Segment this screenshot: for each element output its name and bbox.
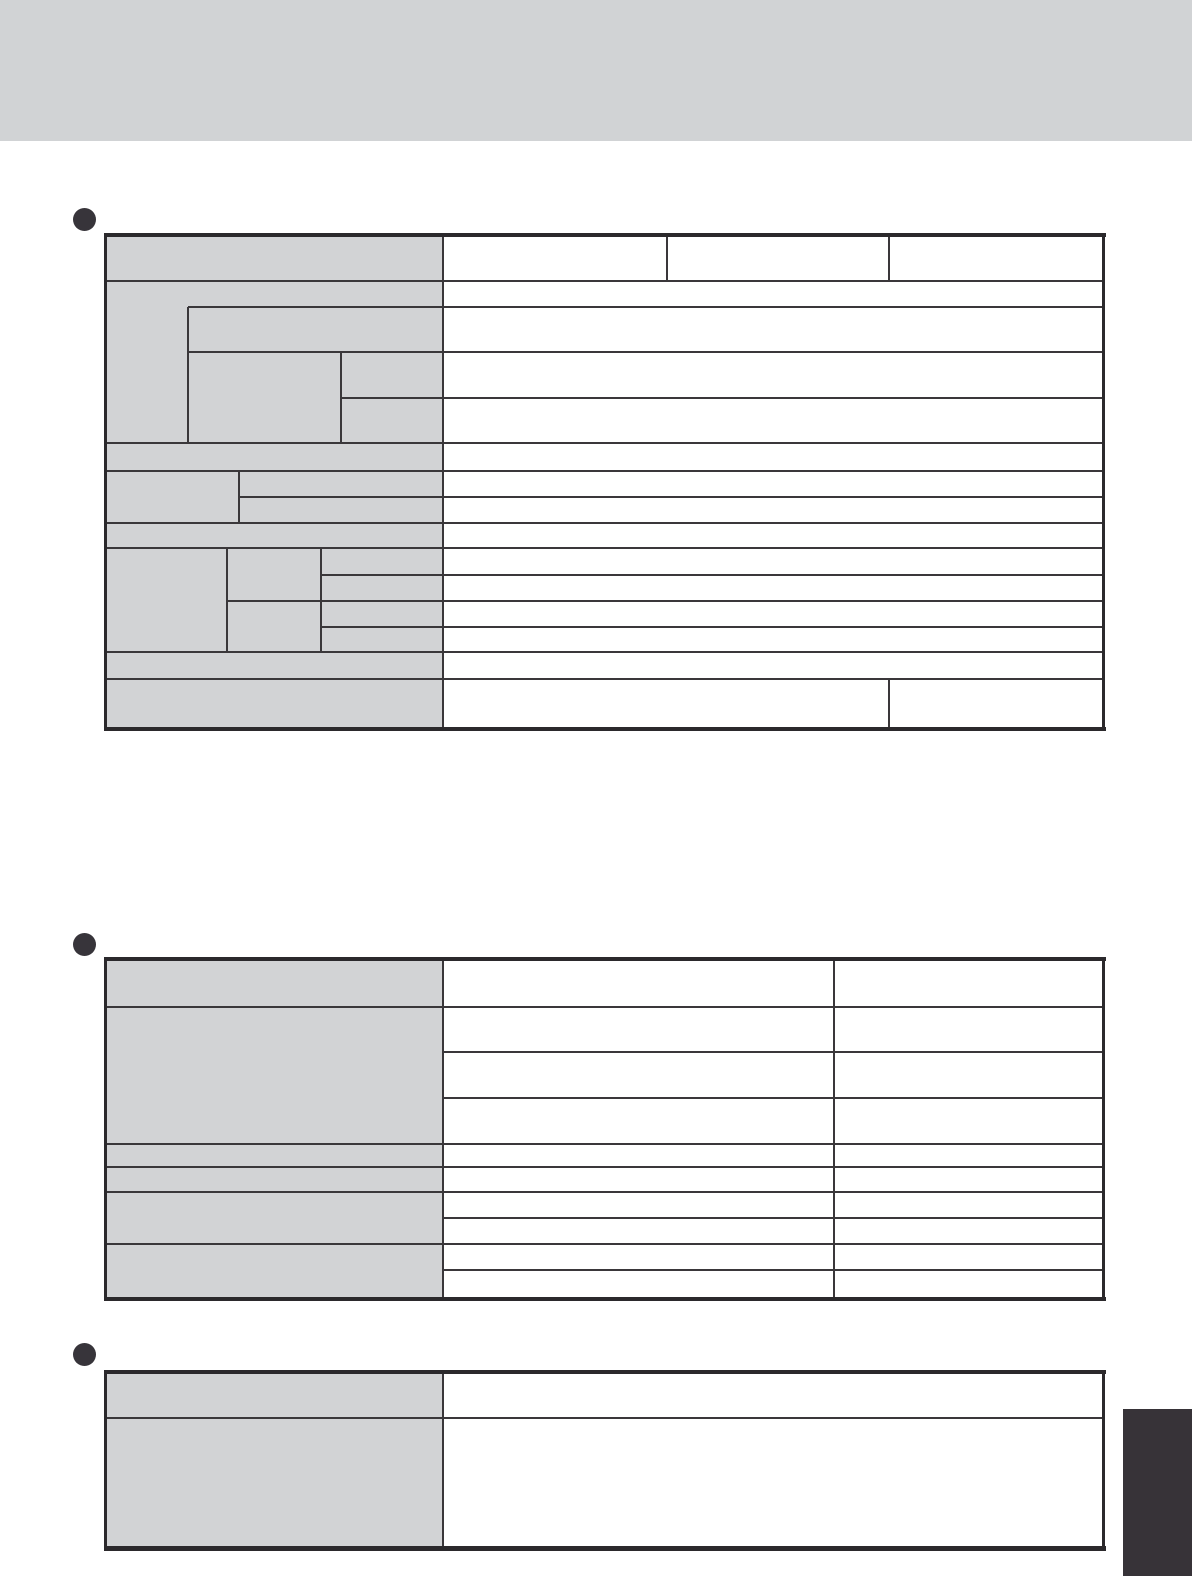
t3-data-cell — [443, 1418, 1104, 1548]
t1-footer-data-cell — [443, 679, 889, 730]
t1-group3-mid-label-cell — [227, 601, 321, 652]
t2-data-cell — [834, 1052, 1104, 1098]
t3-border — [1102, 1370, 1105, 1551]
t2-grid-line — [442, 960, 444, 1300]
t2-grid-line — [443, 1269, 1104, 1271]
t3-row-label-cell — [105, 1418, 443, 1548]
t2-data-cell — [443, 1218, 834, 1244]
t1-group3-label-column — [105, 548, 227, 652]
document-page — [0, 0, 1192, 1576]
t2-row-label-cell — [105, 1144, 443, 1167]
t1-data-cell — [443, 398, 1104, 443]
section3-bullet-icon — [73, 1343, 96, 1366]
t2-merged-label-cell — [105, 1192, 443, 1244]
t1-header-data-cell — [889, 235, 1104, 281]
t1-grid-line — [227, 600, 1104, 602]
t2-data-cell — [443, 1098, 834, 1144]
t2-grid-line — [105, 1143, 1104, 1145]
t1-data-cell — [443, 281, 1104, 307]
t1-group2-label-column — [105, 471, 239, 523]
t1-data-cell — [443, 497, 1104, 523]
t1-border — [1102, 233, 1105, 731]
t1-grid-line — [341, 397, 1104, 399]
page-header-band — [0, 0, 1192, 141]
t1-group1-inner-label-cell — [341, 398, 443, 443]
t2-data-cell — [834, 1007, 1104, 1052]
t1-grid-line — [340, 352, 342, 443]
t1-group1-inner-label-cell — [341, 352, 443, 398]
t2-data-cell — [834, 1167, 1104, 1192]
t1-group3-inner-label-cell — [321, 575, 443, 601]
section1-bullet-icon — [73, 208, 96, 231]
t1-grid-line — [105, 442, 1104, 444]
t1-grid-line — [105, 280, 1104, 282]
t1-data-cell — [443, 601, 1104, 627]
t1-data-cell — [443, 627, 1104, 652]
t1-data-cell — [443, 352, 1104, 398]
t1-group2-sublabel-cell — [239, 497, 443, 523]
t2-grid-line — [443, 1051, 1104, 1053]
t2-grid-line — [105, 1006, 1104, 1008]
t1-grid-line — [105, 651, 1104, 653]
t3-border — [104, 1370, 1106, 1374]
t2-row-label-cell — [105, 1167, 443, 1192]
t1-grid-line — [105, 522, 1104, 524]
t1-grid-line — [666, 235, 668, 281]
t2-data-cell — [834, 1098, 1104, 1144]
t2-header-data-cell — [834, 960, 1104, 1007]
t2-border — [1102, 957, 1105, 1301]
t1-grid-line — [105, 547, 1104, 549]
t1-grid-line — [188, 306, 1104, 308]
t2-data-cell — [834, 1270, 1104, 1300]
t1-data-cell — [443, 548, 1104, 575]
section2-bullet-icon — [73, 933, 96, 956]
t3-border — [104, 1370, 107, 1551]
t1-grid-line — [188, 351, 1104, 353]
t1-grid-line — [239, 496, 1104, 498]
t1-group3-inner-label-cell — [321, 601, 443, 627]
t1-header-data-cell — [667, 235, 889, 281]
t1-group1-sublabel-cell — [188, 307, 443, 352]
t1-row-label-cell — [105, 652, 443, 679]
t2-data-cell — [443, 1270, 834, 1300]
t1-data-cell — [443, 307, 1104, 352]
t2-data-cell — [443, 1167, 834, 1192]
t1-grid-line — [226, 548, 228, 652]
t2-data-cell — [834, 1144, 1104, 1167]
t1-grid-line — [442, 235, 444, 730]
t1-header-label-cell — [105, 235, 443, 281]
t3-grid-line — [442, 1372, 444, 1548]
t1-group3-inner-label-cell — [321, 627, 443, 652]
t1-grid-line — [321, 574, 1104, 576]
t1-data-cell — [443, 652, 1104, 679]
t2-data-cell — [834, 1192, 1104, 1218]
t1-data-cell — [443, 523, 1104, 548]
t3-border — [104, 1546, 1106, 1551]
t1-border — [104, 233, 107, 731]
t2-grid-line — [105, 1191, 1104, 1193]
t1-grid-line — [888, 235, 890, 281]
t2-data-cell — [834, 1244, 1104, 1270]
t1-data-cell — [443, 575, 1104, 601]
t2-border — [104, 1297, 1106, 1301]
t2-border — [104, 957, 1106, 961]
t2-data-cell — [443, 1192, 834, 1218]
t1-group1-label-column — [105, 281, 188, 443]
t1-row-label-cell — [105, 523, 443, 548]
t2-header-label-cell — [105, 960, 443, 1007]
t2-data-cell — [443, 1144, 834, 1167]
t1-grid-line — [105, 678, 1104, 680]
t1-data-cell — [443, 471, 1104, 497]
t2-data-cell — [443, 1052, 834, 1098]
t2-merged-label-cell — [105, 1007, 443, 1144]
t1-grid-line — [321, 626, 1104, 628]
t2-border — [104, 957, 107, 1301]
t2-header-data-cell — [443, 960, 834, 1007]
t1-row-label-cell — [105, 443, 443, 471]
t2-grid-line — [443, 1217, 1104, 1219]
t3-grid-line — [105, 1417, 1104, 1419]
t1-group1-mid-label-cell — [188, 352, 341, 443]
t1-footer-label-cell — [105, 679, 443, 730]
t1-grid-line — [187, 307, 189, 443]
t1-border — [104, 233, 1106, 237]
page-side-tab — [1123, 1409, 1192, 1576]
t1-border — [104, 727, 1106, 731]
t2-data-cell — [834, 1218, 1104, 1244]
t2-data-cell — [443, 1244, 834, 1270]
t2-grid-line — [105, 1166, 1104, 1168]
t1-group2-sublabel-cell — [239, 471, 443, 497]
t1-grid-line — [238, 471, 240, 523]
t1-grid-line — [320, 548, 322, 652]
t2-grid-line — [833, 960, 835, 1300]
t1-group3-inner-label-cell — [321, 548, 443, 575]
t3-row-label-cell — [105, 1372, 443, 1418]
t1-grid-line — [888, 679, 890, 730]
t2-data-cell — [443, 1007, 834, 1052]
t2-merged-label-cell — [105, 1244, 443, 1300]
t1-grid-line — [105, 470, 1104, 472]
t2-grid-line — [105, 1243, 1104, 1245]
t1-header-data-cell — [443, 235, 667, 281]
t1-group3-mid-label-cell — [227, 548, 321, 601]
t1-footer-data-cell — [889, 679, 1104, 730]
t2-grid-line — [443, 1097, 1104, 1099]
t3-data-cell — [443, 1372, 1104, 1418]
t1-data-cell — [443, 443, 1104, 471]
